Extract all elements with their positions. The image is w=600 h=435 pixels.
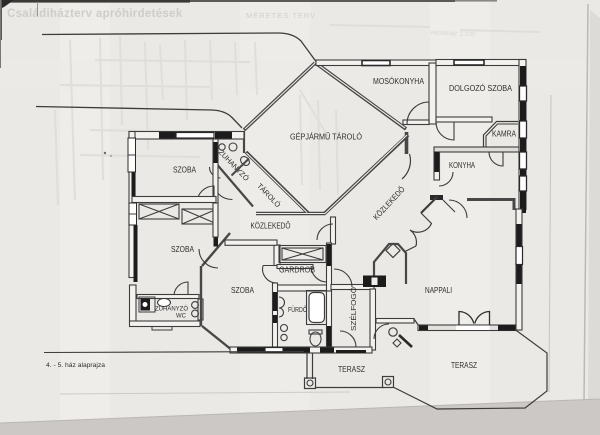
svg-text:NAPPALI: NAPPALI: [425, 286, 452, 295]
svg-text:WC: WC: [176, 314, 187, 320]
svg-text:GÉPJÁRMŰ TÁROLÓ: GÉPJÁRMŰ TÁROLÓ: [290, 132, 362, 142]
svg-text:SZOBA: SZOBA: [171, 245, 195, 254]
svg-text:KAMRA: KAMRA: [492, 130, 517, 139]
svg-text:DOLGOZÓ SZOBA: DOLGOZÓ SZOBA: [449, 83, 512, 93]
svg-text:KONYHA: KONYHA: [449, 161, 476, 170]
svg-text:GARDROB: GARDROB: [279, 266, 315, 275]
svg-text:TERASZ: TERASZ: [338, 365, 365, 374]
svg-text:4. - 5. ház alaprajza: 4. - 5. ház alaprajza: [46, 362, 105, 369]
svg-text:Családiházterv apróhirdetések: Családiházterv apróhirdetések: [7, 8, 183, 20]
svg-text:SZÉLFOGÓ: SZÉLFOGÓ: [349, 287, 358, 331]
svg-text:SZOBA: SZOBA: [231, 286, 255, 295]
svg-text:SZOBA: SZOBA: [173, 166, 197, 175]
svg-text:MOSÓKONYHA: MOSÓKONYHA: [373, 76, 424, 86]
svg-text:MÉRETES TERV: MÉRETES TERV: [246, 11, 316, 20]
svg-text:KÖZLEKEDŐ: KÖZLEKEDŐ: [251, 222, 291, 231]
svg-text:TERASZ: TERASZ: [451, 361, 477, 370]
svg-text:ZUHANYZÓ: ZUHANYZÓ: [155, 306, 188, 313]
svg-text:FÜRDŐ: FÜRDŐ: [288, 305, 307, 314]
